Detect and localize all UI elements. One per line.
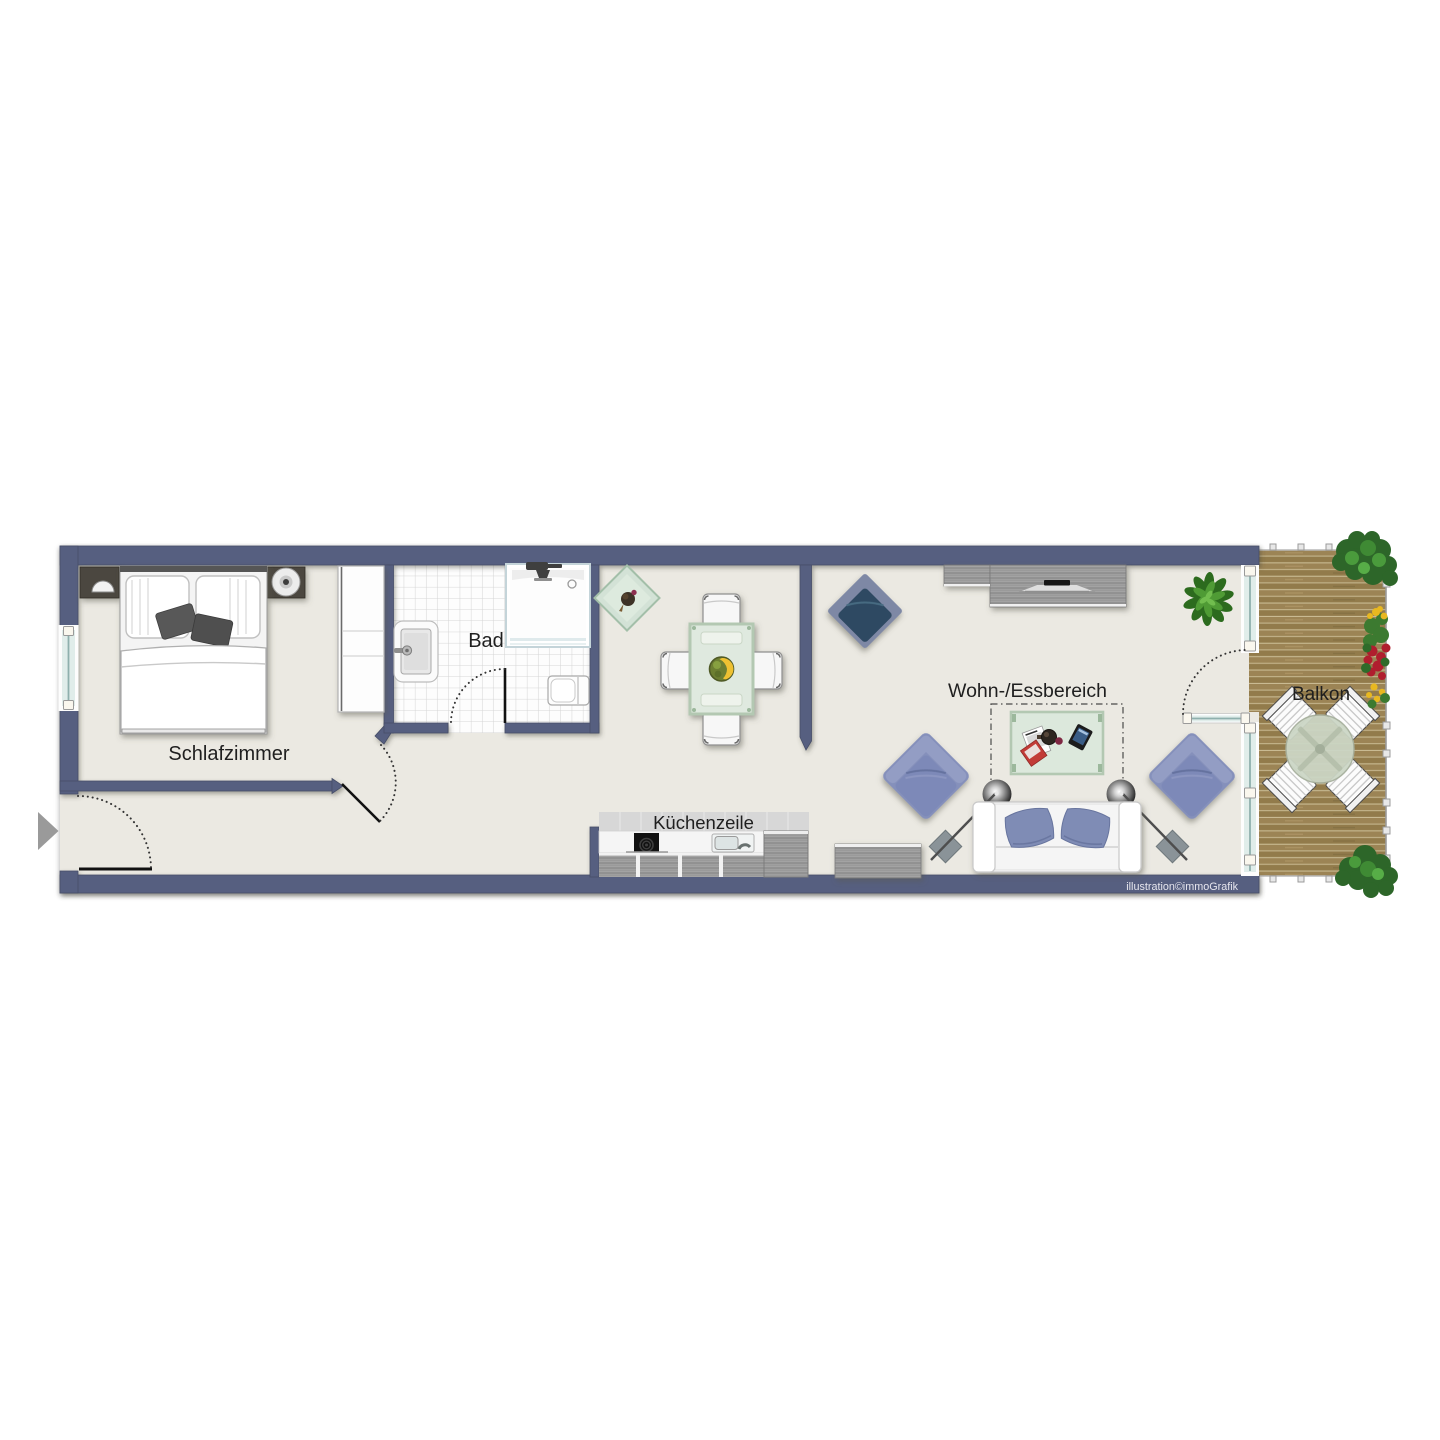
svg-text:Wohn-/Essbereich: Wohn-/Essbereich <box>948 680 1107 702</box>
svg-text:Schlafzimmer: Schlafzimmer <box>168 743 289 765</box>
svg-text:Balkon: Balkon <box>1292 684 1350 705</box>
svg-text:Küchenzeile: Küchenzeile <box>653 812 754 833</box>
svg-text:illustration©immoGrafik: illustration©immoGrafik <box>1126 881 1238 893</box>
svg-text:Bad: Bad <box>468 630 504 652</box>
